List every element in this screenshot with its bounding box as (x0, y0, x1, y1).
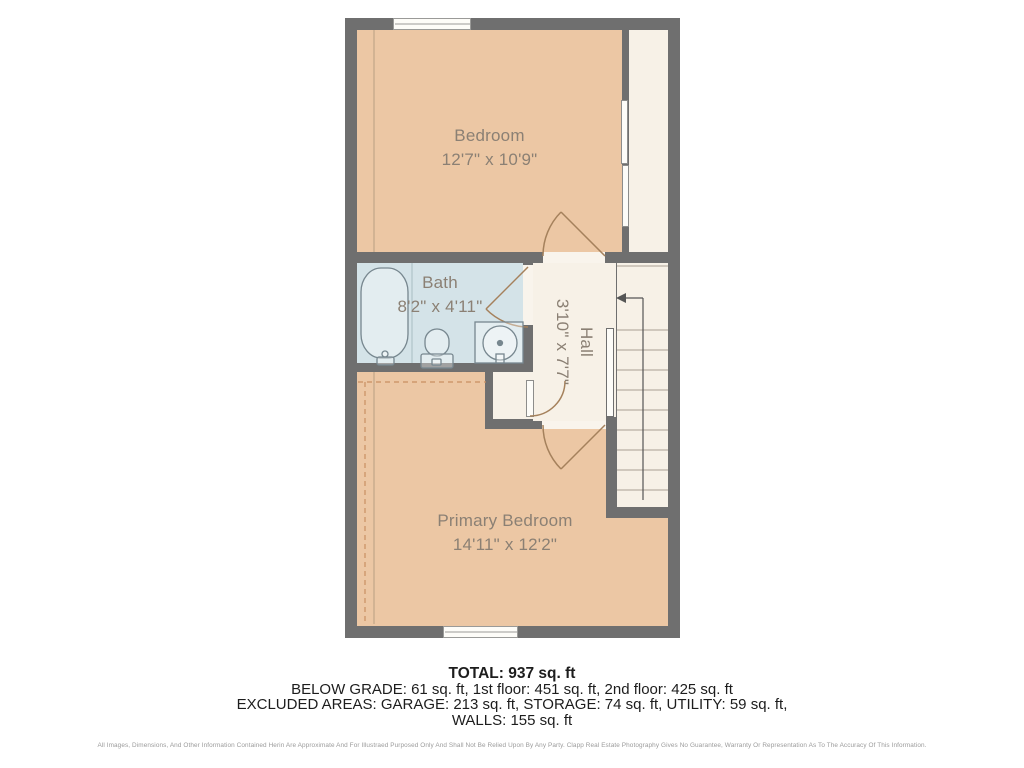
hall-label: Hall 3'10" x 7'7" (550, 257, 598, 427)
primary-bedroom-label: Primary Bedroom 14'11" x 12'2" (357, 509, 653, 557)
stair-handrail (606, 328, 614, 417)
stairwell-wall (606, 417, 617, 507)
bedroom-label: Bedroom 12'7" x 10'9" (357, 124, 622, 172)
primary-window (443, 626, 518, 638)
bedroom-name: Bedroom (357, 124, 622, 148)
floor-areas: BELOW GRADE: 61 sq. ft, 1st floor: 451 s… (0, 682, 1024, 698)
bath-dims: 8'2" x 4'11" (357, 295, 523, 319)
bath-name: Bath (357, 271, 523, 295)
floor-plan: Bedroom 12'7" x 10'9" Bath 8'2" x 4'11" … (345, 18, 680, 638)
bath-door-opening (523, 265, 533, 325)
total-area: TOTAL: 937 sq. ft (0, 666, 1024, 682)
stairwell (617, 263, 668, 507)
excluded-areas: EXCLUDED AREAS: GARAGE: 213 sq. ft, STOR… (0, 697, 1024, 713)
hall-dims: 3'10" x 7'7" (550, 257, 574, 427)
bedroom-window (393, 18, 471, 30)
room-primary-bedroom (357, 372, 485, 626)
bath-label: Bath 8'2" x 4'11" (357, 271, 523, 319)
disclaimer-text: All Images, Dimensions, And Other Inform… (0, 742, 1024, 749)
closet-slider-door-2 (622, 165, 629, 227)
closet-slider-door-1 (621, 100, 628, 164)
nook-door-leaf (526, 380, 534, 417)
walls-area: WALLS: 155 sq. ft (0, 713, 1024, 729)
primary-bedroom-name: Primary Bedroom (357, 509, 653, 533)
bedroom-closet-area (629, 30, 668, 252)
primary-bedroom-dims: 14'11" x 12'2" (357, 533, 653, 557)
area-summary: TOTAL: 937 sq. ft BELOW GRADE: 61 sq. ft… (0, 666, 1024, 728)
hall-name: Hall (574, 257, 598, 427)
bedroom-dims: 12'7" x 10'9" (357, 148, 622, 172)
